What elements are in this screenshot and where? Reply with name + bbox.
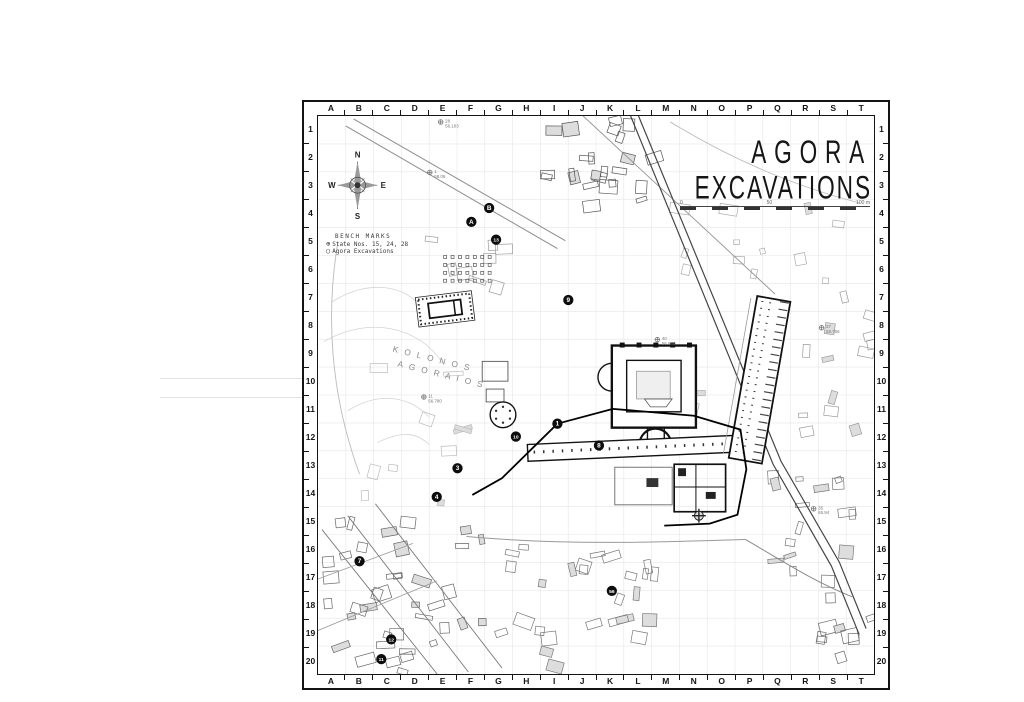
compass-south-label: S [355, 212, 360, 221]
monument-marker-label: 13 [493, 238, 499, 244]
ruin-block [370, 363, 388, 372]
monument-marker-label: 11 [379, 657, 384, 663]
grid-row-label: 20 [875, 647, 888, 675]
grid-row-label: 5 [875, 227, 888, 255]
ruin-block [427, 600, 445, 611]
benchmark-elevation: 65.94 [818, 510, 830, 515]
bouleuterion [482, 361, 508, 402]
buildings-layer [415, 256, 790, 523]
church-of-holy-apostles [692, 509, 706, 523]
compass-rose: N S W E [328, 151, 386, 221]
ruin-block [858, 346, 874, 358]
road [346, 126, 558, 249]
grid-col-label: T [847, 102, 875, 115]
ruin-block [623, 118, 635, 131]
grid-row-label: 18 [304, 591, 317, 619]
legend-item-label: State Nos. 15, 24, 28 [332, 241, 408, 249]
grid-col-label: N [680, 102, 708, 115]
grid-row-label: 2 [875, 143, 888, 171]
map-text-labels: K O L O N O S A G O R A I O S [392, 344, 486, 390]
monument-marker-label: 8 [597, 442, 601, 449]
grid-col-label: F [457, 675, 485, 688]
ruin-block [785, 538, 795, 546]
ruin-block [822, 355, 834, 362]
ruin-block [568, 562, 577, 576]
grid-rows-right: 1234567891011121314151617181920 [875, 115, 888, 675]
ruin-block [835, 651, 847, 664]
ruin-block [360, 603, 378, 613]
monument-marker-label: 56 [609, 589, 615, 595]
grid-col-label: P [736, 102, 764, 115]
ruin-block [582, 199, 600, 213]
grid-row-label: 17 [875, 563, 888, 591]
ruin-block [832, 478, 844, 490]
grid-col-label: L [624, 102, 652, 115]
grid-row-label: 11 [875, 395, 888, 423]
benchmark-elevation: 56.103 [445, 123, 459, 128]
column-dot [473, 271, 476, 274]
monument-marker-label: 1 [556, 421, 560, 428]
ruin-block [635, 180, 647, 194]
ruin-block [457, 617, 468, 630]
column-dot [451, 271, 454, 274]
grid-col-label: P [736, 675, 764, 688]
grid-col-label: O [708, 102, 736, 115]
grid-rows-left: 1234567891011121314151617181920 [304, 115, 317, 675]
grid-row-label: 9 [304, 339, 317, 367]
monument-marker-label: 3 [456, 465, 460, 472]
title-line-1: AGORA [665, 136, 872, 171]
grid-row-label: 8 [875, 311, 888, 339]
grid-col-label: D [401, 675, 429, 688]
map-canvas: K O L O N O S A G O R A I O S 2856.10315… [317, 115, 875, 675]
monument-markers: 1347891011121356AB [354, 203, 617, 664]
column-dot [488, 271, 491, 274]
ruin-block [795, 521, 804, 534]
scan-artifact-line [160, 378, 302, 379]
grid-row-label: 4 [875, 199, 888, 227]
ruin-block [803, 344, 811, 357]
ruin-block [419, 411, 435, 427]
ruin-block [828, 390, 838, 404]
odeon-of-agrippa [598, 343, 696, 445]
ruin-block [324, 598, 333, 609]
grid-col-label: L [624, 675, 652, 688]
ruin-block [799, 426, 814, 438]
ruin-block [538, 579, 546, 588]
ruin-block [456, 266, 473, 280]
ruin-block [478, 618, 486, 625]
grid-row-label: 7 [875, 283, 888, 311]
ruin-block [625, 571, 637, 581]
grid-row-label: 1 [875, 115, 888, 143]
grid-col-label: E [429, 102, 457, 115]
grid-col-label: B [345, 675, 373, 688]
grid-col-label: R [791, 102, 819, 115]
column-dot [466, 256, 469, 259]
legend-item-label: Agora Excavations [332, 248, 393, 256]
ruin-block [734, 240, 740, 245]
column-dot [473, 263, 476, 266]
grid-col-label: G [484, 675, 512, 688]
grid-row-label: 10 [304, 367, 317, 395]
grid-col-label: B [345, 102, 373, 115]
legend-heading: BENCH MARKS [335, 233, 408, 241]
ruin-block [784, 552, 797, 560]
ruin-block [770, 477, 781, 491]
ruin-block [612, 167, 627, 175]
grid-col-label: M [652, 675, 680, 688]
grid-row-label: 1 [304, 115, 317, 143]
tholos [490, 402, 516, 428]
grid-col-label: I [540, 675, 568, 688]
benchmark-elevation: 56.780 [428, 398, 442, 403]
grid-col-label: C [373, 102, 401, 115]
grid-col-label: R [791, 675, 819, 688]
ruin-block [832, 220, 844, 228]
ruin-block [394, 541, 410, 557]
grid-col-label: S [819, 675, 847, 688]
page-title: AGORA EXCAVATIONS [665, 136, 872, 208]
grid-row-label: 18 [875, 591, 888, 619]
ruin-block [799, 413, 808, 418]
grid-row-label: 13 [304, 451, 317, 479]
agora-benchmark-icon: ○ [326, 248, 330, 255]
grid-col-label: J [568, 102, 596, 115]
ruin-block [513, 612, 535, 630]
ruin-block [586, 618, 603, 630]
grid-col-label: Q [764, 675, 792, 688]
grid-col-label: A [317, 102, 345, 115]
ruin-block [823, 278, 829, 284]
column-dot [488, 263, 491, 266]
ruin-block [322, 556, 334, 567]
road [354, 119, 566, 241]
ruin-block [541, 173, 553, 181]
grid-row-label: 15 [304, 507, 317, 535]
ruin-block [863, 310, 874, 324]
grid-col-label: G [484, 102, 512, 115]
ruin-block [361, 491, 368, 501]
monument-marker-label: 10 [513, 435, 519, 441]
ruin-block [455, 544, 468, 549]
grid-row-label: 17 [304, 563, 317, 591]
ruin-block [849, 509, 856, 519]
stoa-of-attalos [723, 295, 790, 464]
column-dot [466, 271, 469, 274]
road [466, 536, 745, 542]
column-dot [451, 256, 454, 259]
column-dot [458, 271, 461, 274]
grid-row-label: 6 [304, 255, 317, 283]
ruin-block [440, 622, 450, 633]
grid-row-label: 19 [875, 619, 888, 647]
column-dot [481, 271, 484, 274]
column-dot [488, 279, 491, 282]
grid-col-label: N [680, 675, 708, 688]
scale-bar: 0 50 100 m [680, 200, 870, 210]
ruin-block [388, 464, 398, 471]
grid-col-label: F [457, 102, 485, 115]
ruin-block [357, 542, 368, 553]
grid-col-label: Q [764, 102, 792, 115]
benchmarks-legend: BENCH MARKS ⊕ State Nos. 15, 24, 28 ○ Ag… [326, 233, 408, 256]
benchmark-elevation: 56.946 [662, 341, 676, 346]
grid-row-label: 13 [875, 451, 888, 479]
ruin-block [546, 126, 562, 136]
ruin-block [397, 667, 408, 674]
grid-col-label: A [317, 675, 345, 688]
ruin-block [838, 507, 857, 518]
column-dot [481, 263, 484, 266]
grid-col-label: K [596, 102, 624, 115]
ruin-block [385, 656, 400, 668]
grid-row-label: 16 [875, 535, 888, 563]
ruin-block [588, 153, 594, 165]
column-dot [458, 256, 461, 259]
excavation-boundary [472, 409, 746, 526]
grid-columns-top: ABCDEFGHIJKLMNOPQRST [317, 102, 875, 115]
ruin-block [642, 613, 657, 626]
ruin-block [541, 631, 558, 646]
compass-west-label: W [328, 181, 336, 190]
column-dot [444, 263, 447, 266]
ruin-block [546, 659, 564, 674]
monument-marker-label: 9 [567, 297, 571, 304]
column-dot [458, 263, 461, 266]
grid-row-label: 7 [304, 283, 317, 311]
ruin-block [794, 253, 807, 266]
ruin-block [323, 571, 339, 584]
ruin-block [863, 331, 874, 342]
ruin-block [519, 544, 529, 550]
ruin-block [591, 170, 601, 180]
grid-row-label: 15 [875, 507, 888, 535]
grid-row-label: 4 [304, 199, 317, 227]
column-dot [473, 256, 476, 259]
street [322, 530, 439, 674]
grid-row-label: 10 [875, 367, 888, 395]
temple-hephaisteion [415, 291, 475, 327]
grid-row-label: 9 [875, 339, 888, 367]
monument-marker-label: 7 [358, 558, 362, 565]
ruin-block [412, 574, 432, 588]
benchmark-elevation: 58.06 [434, 174, 446, 179]
grid-col-label: M [652, 102, 680, 115]
grid-row-label: 11 [304, 395, 317, 423]
monument-marker-label: A [469, 219, 474, 226]
ruin-block [400, 651, 414, 662]
ruin-block [562, 121, 580, 137]
benchmark-elevation: 58.756 [826, 329, 840, 334]
ruin-block [575, 558, 592, 574]
column-dot [444, 279, 447, 282]
grid-row-label: 16 [304, 535, 317, 563]
ruin-block [331, 640, 350, 652]
grid-col-label: K [596, 675, 624, 688]
scan-artifact-line [160, 397, 302, 398]
grid-row-label: 14 [875, 479, 888, 507]
grid-row-label: 14 [304, 479, 317, 507]
ruin-block [824, 405, 839, 417]
road [745, 539, 852, 596]
scale-bar-rule [680, 206, 870, 210]
column-dot [488, 256, 491, 259]
compass-east-label: E [381, 181, 386, 190]
column-dot [451, 279, 454, 282]
grid-col-label: D [401, 102, 429, 115]
scale-label-right: 100 m [856, 200, 870, 206]
grid-col-label: H [512, 102, 540, 115]
grid-row-label: 3 [304, 171, 317, 199]
ruin-block [814, 484, 830, 493]
monument-marker-label: 4 [435, 494, 439, 501]
ruin-block [381, 527, 397, 538]
column-dot [444, 256, 447, 259]
grid-row-label: 6 [875, 255, 888, 283]
grid-col-label: E [429, 675, 457, 688]
ruin-block [839, 545, 854, 560]
grid-col-label: C [373, 675, 401, 688]
ruin-block [425, 236, 438, 243]
ruin-block [460, 525, 471, 534]
grid-row-label: 2 [304, 143, 317, 171]
ruin-block [355, 652, 376, 667]
grid-row-label: 12 [304, 423, 317, 451]
monument-marker-label: 12 [388, 637, 394, 643]
south-square [615, 464, 726, 511]
ruin-block [335, 518, 346, 528]
ruin-block [834, 623, 846, 633]
ruin-block [539, 646, 553, 658]
scanned-map-page: { "title": { "line1": "AGORA", "line2": … [0, 0, 1024, 702]
ruin-block [796, 477, 804, 482]
grid-row-label: 19 [304, 619, 317, 647]
grid-col-label: H [512, 675, 540, 688]
ruin-block [608, 116, 622, 127]
map-frame: ABCDEFGHIJKLMNOPQRST ABCDEFGHIJKLMNOPQRS… [302, 100, 890, 690]
ruin-block [866, 613, 874, 622]
column-dot [481, 256, 484, 259]
ruin-block [840, 291, 849, 303]
grid-row-label: 20 [304, 647, 317, 675]
ruin-block [631, 630, 648, 644]
ruin-block [495, 628, 508, 638]
scale-label-mid: 50 [767, 200, 773, 206]
middle-stoa [527, 435, 741, 461]
grid-row-label: 12 [875, 423, 888, 451]
grid-row-label: 3 [875, 171, 888, 199]
column-dot [444, 271, 447, 274]
scale-label-left: 0 [680, 200, 683, 206]
ruin-block [826, 593, 836, 603]
ruin-block [399, 649, 415, 655]
grid-col-label: T [847, 675, 875, 688]
ruin-block [614, 593, 624, 606]
ruin-block [400, 516, 416, 529]
grid-columns-bottom: ABCDEFGHIJKLMNOPQRST [317, 675, 875, 688]
grid-row-label: 8 [304, 311, 317, 339]
grid-col-label: J [568, 675, 596, 688]
ruin-block [535, 626, 545, 636]
ruin-block [633, 587, 640, 601]
ruin-block [579, 155, 593, 161]
ruin-block [478, 534, 485, 544]
grid-row-label: 5 [304, 227, 317, 255]
grid-col-label: S [819, 102, 847, 115]
ruin-block [849, 423, 862, 436]
compass-north-label: N [355, 151, 361, 160]
ruin-block [681, 264, 691, 276]
column-dot [466, 263, 469, 266]
grid-col-label: I [540, 102, 568, 115]
grid-col-label: O [708, 675, 736, 688]
monument-marker-label: B [487, 205, 492, 212]
ruin-block [835, 476, 843, 483]
